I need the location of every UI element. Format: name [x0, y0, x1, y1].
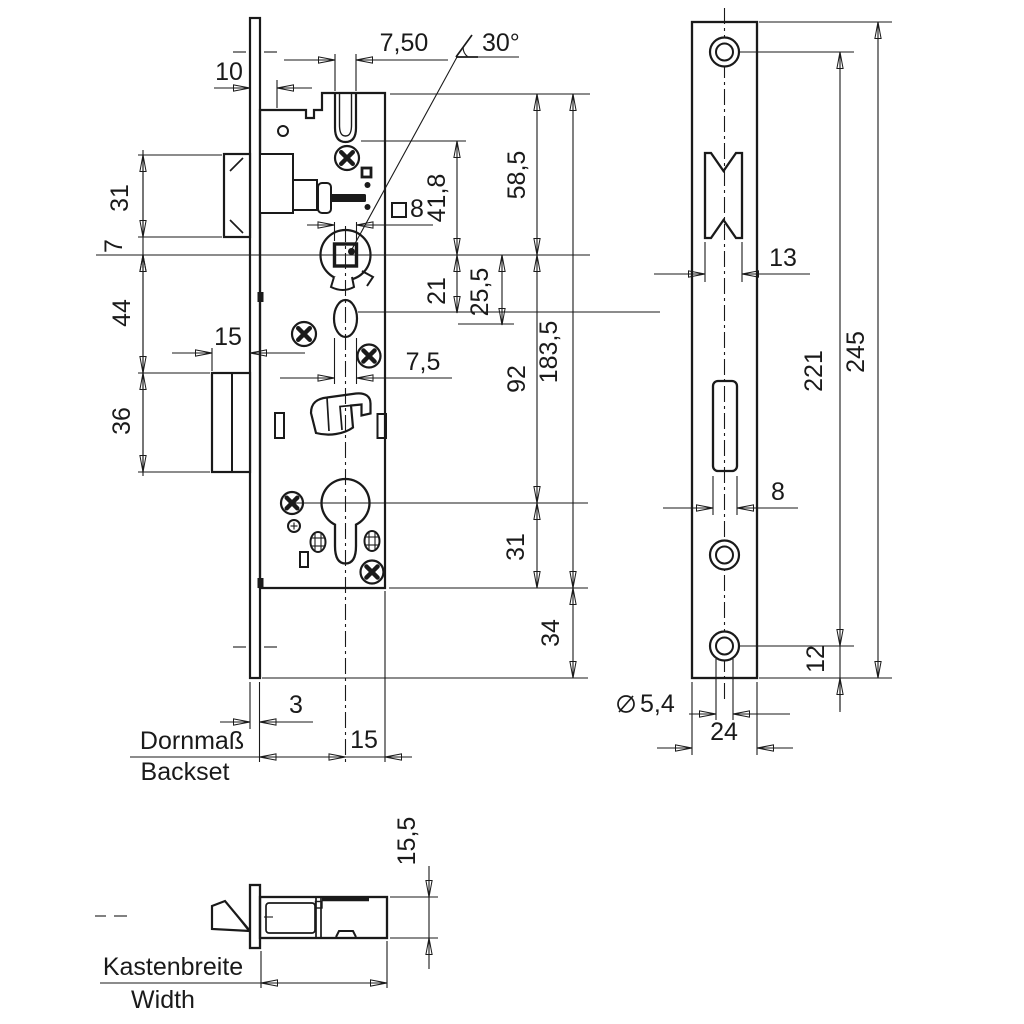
dim-label: 31: [502, 533, 530, 561]
technical-drawing: 10 7,50 30° 31 7 4: [0, 0, 1024, 1024]
dim-label: 15: [350, 726, 378, 754]
dim-label: 36: [108, 407, 136, 435]
dim-label: 221: [800, 350, 828, 392]
backset-label-en: Backset: [141, 758, 230, 786]
drawing-page: 10 7,50 30° 31 7 4: [0, 0, 1024, 1024]
screw-hole-icon: [710, 632, 739, 661]
dim-throw-15: 15: [172, 323, 305, 353]
dim-case-height-15-5: 15,5: [393, 817, 429, 969]
dim-label: 5,4: [640, 690, 675, 718]
case-slot: [275, 413, 284, 438]
dim-square-8: 8: [307, 195, 433, 225]
dim-label: 7: [100, 239, 128, 253]
phillips-screw-icon: [292, 322, 316, 346]
dim-41-8: 41,8: [423, 141, 457, 255]
faceplate-bottom: [250, 885, 260, 948]
case-slot: [300, 552, 308, 567]
dim-label: 3: [289, 691, 303, 719]
latch-guide-slot: [335, 93, 356, 142]
dim-label: 13: [769, 244, 797, 272]
case-tab: [336, 931, 356, 937]
dim-label: 25,5: [466, 268, 494, 317]
dim-label: 12: [802, 645, 830, 673]
dim-offset-10: 10: [214, 58, 312, 88]
rivet-hole: [278, 126, 288, 136]
latch-guide-pin: [340, 93, 352, 136]
dim-label: 24: [710, 718, 738, 746]
dim-label: 10: [215, 58, 243, 86]
dim-slot-width: 7,50: [284, 29, 448, 60]
dim-58-5: 58,5: [503, 94, 537, 255]
dim-245: 245: [842, 22, 878, 678]
spring-slide: [318, 183, 331, 213]
width-label-de: Kastenbreite: [103, 953, 243, 981]
dim-hole-diameter: 5,4: [618, 690, 790, 718]
dim-label: 21: [423, 277, 451, 305]
dim-label: 92: [503, 365, 531, 393]
dim-latch-height-31: 31: [106, 155, 143, 237]
angle-icon: [456, 35, 478, 57]
dim-92: 92: [503, 255, 537, 503]
phillips-screw-icon: [358, 345, 381, 368]
dim-label: 15,5: [393, 817, 421, 866]
latch-spring-bar: [330, 194, 366, 202]
plate-lug: [258, 292, 264, 302]
dim-label: 15: [214, 323, 242, 351]
deadbolt: [212, 373, 250, 472]
small-screw-icon: [288, 520, 300, 532]
dim-44: 44: [108, 255, 143, 373]
dim-deadbolt-36: 36: [108, 373, 143, 472]
dim-25-5: 25,5: [466, 255, 502, 325]
latch-bolt: [224, 154, 317, 237]
dim-label: 7,50: [380, 29, 429, 57]
screw-hole-icon: [710, 541, 739, 570]
dim-221: 221: [800, 52, 840, 646]
dim-183-5: 183,5: [535, 94, 573, 588]
threaded-hole-icon: [365, 531, 380, 551]
backset-label-de: Dornmaß: [140, 727, 244, 755]
front-view: 10 7,50 30° 31 7 4: [96, 18, 660, 786]
dim-label: 7,5: [406, 348, 441, 376]
stop-pin: [362, 168, 371, 177]
dim-cyl-31: 31: [502, 503, 537, 588]
dim-label: 58,5: [503, 151, 531, 200]
width-label-en: Width: [131, 986, 195, 1014]
dim-backset: Dornmaß Backset 15: [130, 726, 412, 786]
dim-label: 183,5: [535, 321, 563, 384]
phillips-screw-icon: [361, 561, 384, 584]
dim-label: 34: [537, 619, 565, 647]
dim-label: 31: [106, 184, 134, 212]
dim-label: 41,8: [423, 174, 451, 223]
case-inner-chamber: [266, 903, 315, 933]
dim-gap-7: 7: [100, 239, 143, 268]
screw-hole-icon: [710, 38, 739, 67]
phillips-screw-icon: [335, 146, 359, 170]
threaded-hole-icon: [311, 532, 326, 552]
dim-label: 44: [108, 299, 136, 327]
faceplate-view: 13 8 221 12 245 24: [618, 8, 892, 755]
dim-label: 30°: [482, 29, 520, 57]
pivot-pin: [365, 182, 371, 188]
dim-plate-3: 3: [220, 691, 313, 722]
dim-label: 8: [410, 195, 424, 223]
dim-case-width: Kastenbreite Width: [100, 953, 387, 1014]
dim-21: 21: [423, 255, 457, 313]
dim-label: 245: [842, 331, 870, 373]
front-dimensions: 10 7,50 30° 31 7 4: [96, 29, 660, 786]
bottom-geometry: [95, 885, 387, 948]
bottom-view: 15,5 Kastenbreite Width: [95, 817, 438, 1014]
dim-34: 34: [537, 588, 573, 678]
dim-24: 24: [657, 718, 793, 748]
faceplate-geometry: [692, 8, 757, 702]
dim-label: 8: [771, 478, 785, 506]
pivot-pin: [365, 204, 371, 210]
plate-lug: [258, 578, 264, 588]
handle-follower: [321, 230, 374, 290]
square-symbol: [392, 203, 406, 217]
front-geometry: [212, 18, 386, 764]
latch-bolt-bottom: [212, 901, 250, 931]
change-lever-hook: [311, 393, 371, 434]
